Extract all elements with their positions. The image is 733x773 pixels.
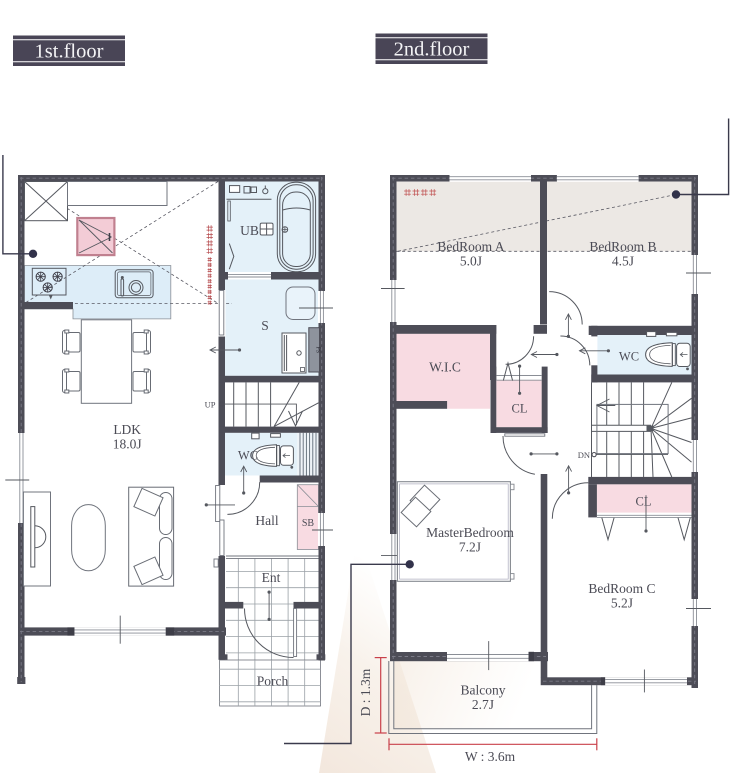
svg-text:D : 1.3m: D : 1.3m: [358, 668, 373, 716]
svg-text:Hall: Hall: [255, 513, 278, 528]
svg-text:MasterBedroom: MasterBedroom: [426, 525, 514, 540]
svg-text:DN: DN: [578, 450, 590, 460]
svg-text:WC: WC: [238, 449, 258, 463]
svg-text:UB: UB: [240, 223, 259, 238]
svg-text:S: S: [261, 318, 269, 333]
svg-text:BedRoom B: BedRoom B: [589, 239, 656, 254]
svg-text:4.5J: 4.5J: [612, 254, 634, 269]
svg-text:2nd.floor: 2nd.floor: [394, 39, 470, 61]
svg-text:Porch: Porch: [257, 674, 289, 689]
svg-text:WC: WC: [619, 350, 639, 364]
svg-text:W.I.C: W.I.C: [429, 360, 461, 375]
svg-text:BedRoom C: BedRoom C: [588, 581, 655, 596]
svg-text:SB: SB: [302, 518, 315, 529]
svg-text:1st.floor: 1st.floor: [35, 41, 104, 63]
svg-text:CL: CL: [636, 495, 652, 509]
svg-text:Balcony: Balcony: [461, 683, 506, 698]
svg-text:5.0J: 5.0J: [460, 254, 482, 269]
svg-text:CL: CL: [512, 402, 528, 416]
svg-text:W : 3.6m: W : 3.6m: [465, 749, 516, 764]
svg-text:5.2J: 5.2J: [611, 596, 633, 611]
svg-text:LDK: LDK: [113, 422, 141, 437]
svg-text:PS: PS: [315, 346, 321, 353]
svg-text:7.2J: 7.2J: [459, 540, 481, 555]
svg-text:2.7J: 2.7J: [472, 697, 494, 712]
svg-text:BedRoom A: BedRoom A: [437, 239, 504, 254]
svg-text:Ent: Ent: [262, 570, 281, 585]
svg-text:18.0J: 18.0J: [113, 437, 142, 452]
svg-text:UP: UP: [205, 400, 216, 410]
